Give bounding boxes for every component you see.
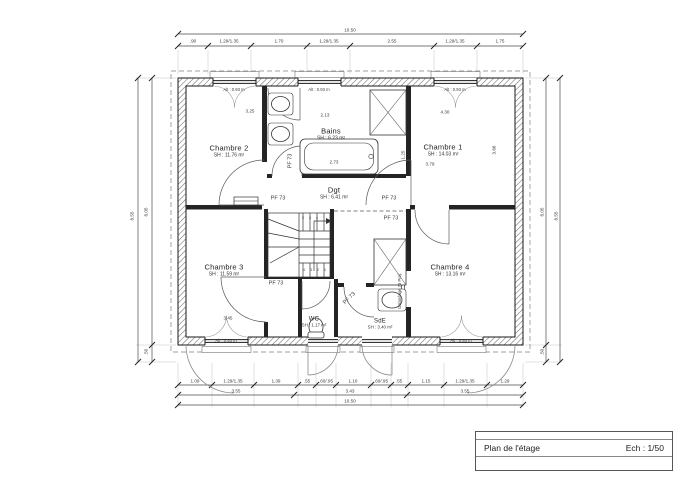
room-name: Chambre 1: [424, 143, 463, 152]
room-name: Dgt: [320, 186, 348, 195]
room-area: SH : 13.16 m²: [431, 272, 470, 278]
sheet-title: Plan de l'étage: [484, 443, 540, 453]
room-area: SH : 6.23 m²: [317, 136, 345, 142]
room-name: Chambre 2: [210, 144, 249, 153]
staircase: [268, 213, 332, 277]
dimension-lines: [138, 34, 560, 405]
bathtub: [300, 139, 378, 174]
room-label-chambre-3: Chambre 3 SH : 11.59 m²: [205, 263, 244, 278]
windows: [202, 72, 486, 353]
room-label-bains: Bains SH : 6.23 m²: [317, 127, 345, 142]
washbasin: [268, 123, 293, 145]
room-label-sde: SdE SH : 3.40 m²: [368, 319, 393, 330]
extension-lines: [136, 50, 562, 407]
shower: [374, 239, 406, 285]
room-area: SH : 6.41 m²: [320, 195, 348, 201]
floor-plan-drawing: [0, 0, 690, 488]
title-block-empty-row: [476, 432, 672, 440]
roof-overhang-dashed-outline: [171, 71, 530, 352]
room-label-wc: WC SH : 1.17 m²: [302, 317, 327, 328]
room-area: SH : 11.76 m²: [210, 153, 249, 159]
sde-washbasin: [378, 289, 406, 311]
room-label-chambre-2: Chambre 2 SH : 11.76 m²: [210, 144, 249, 159]
sheet-scale: Ech : 1/50: [626, 443, 664, 453]
room-label-dgt: Dgt SH : 6.41 m²: [320, 186, 348, 201]
dimension-ticks: [135, 31, 563, 408]
room-label-chambre-1: Chambre 1 SH : 14.03 m²: [424, 143, 463, 158]
title-block-main-row: Plan de l'étage Ech : 1/50: [476, 440, 672, 457]
room-name: Chambre 3: [205, 263, 244, 272]
drawing-sheet: Chambre 2 SH : 11.76 m² Bains SH : 6.23 …: [0, 0, 690, 488]
room-name: Bains: [317, 127, 345, 136]
washbasin: [268, 93, 293, 115]
room-label-chambre-4: Chambre 4 SH : 13.16 m²: [431, 263, 470, 278]
radiator: [234, 197, 258, 205]
linen-closet: [370, 90, 406, 135]
room-name: Chambre 4: [431, 263, 470, 272]
room-area: SH : 1.17 m²: [302, 323, 327, 328]
title-block-empty-row: [476, 457, 672, 470]
exterior-walls: [178, 78, 523, 345]
room-area: SH : 11.59 m²: [205, 272, 244, 278]
title-block: Plan de l'étage Ech : 1/50: [475, 431, 673, 471]
interior-walls: [186, 86, 515, 337]
room-area: SH : 14.03 m²: [424, 152, 463, 158]
room-area: SH : 3.40 m²: [368, 325, 393, 330]
